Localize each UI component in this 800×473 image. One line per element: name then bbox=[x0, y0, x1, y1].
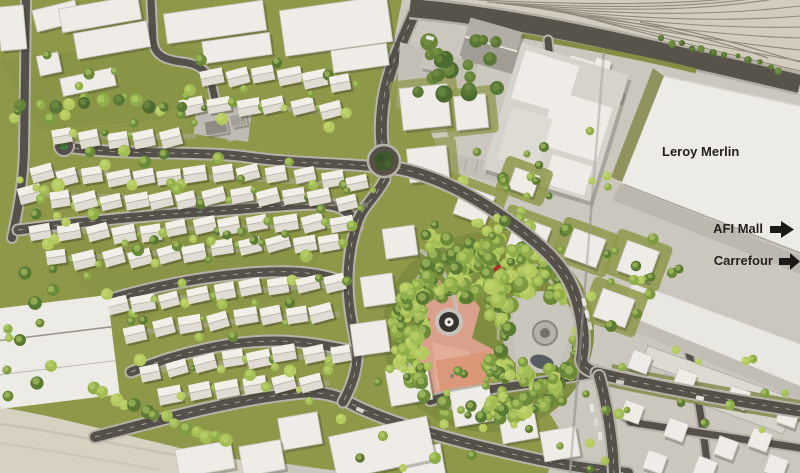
svg-text:AFI Mall: AFI Mall bbox=[713, 221, 763, 236]
svg-text:Carrefour: Carrefour bbox=[714, 253, 773, 268]
svg-text:Leroy Merlin: Leroy Merlin bbox=[662, 144, 739, 159]
